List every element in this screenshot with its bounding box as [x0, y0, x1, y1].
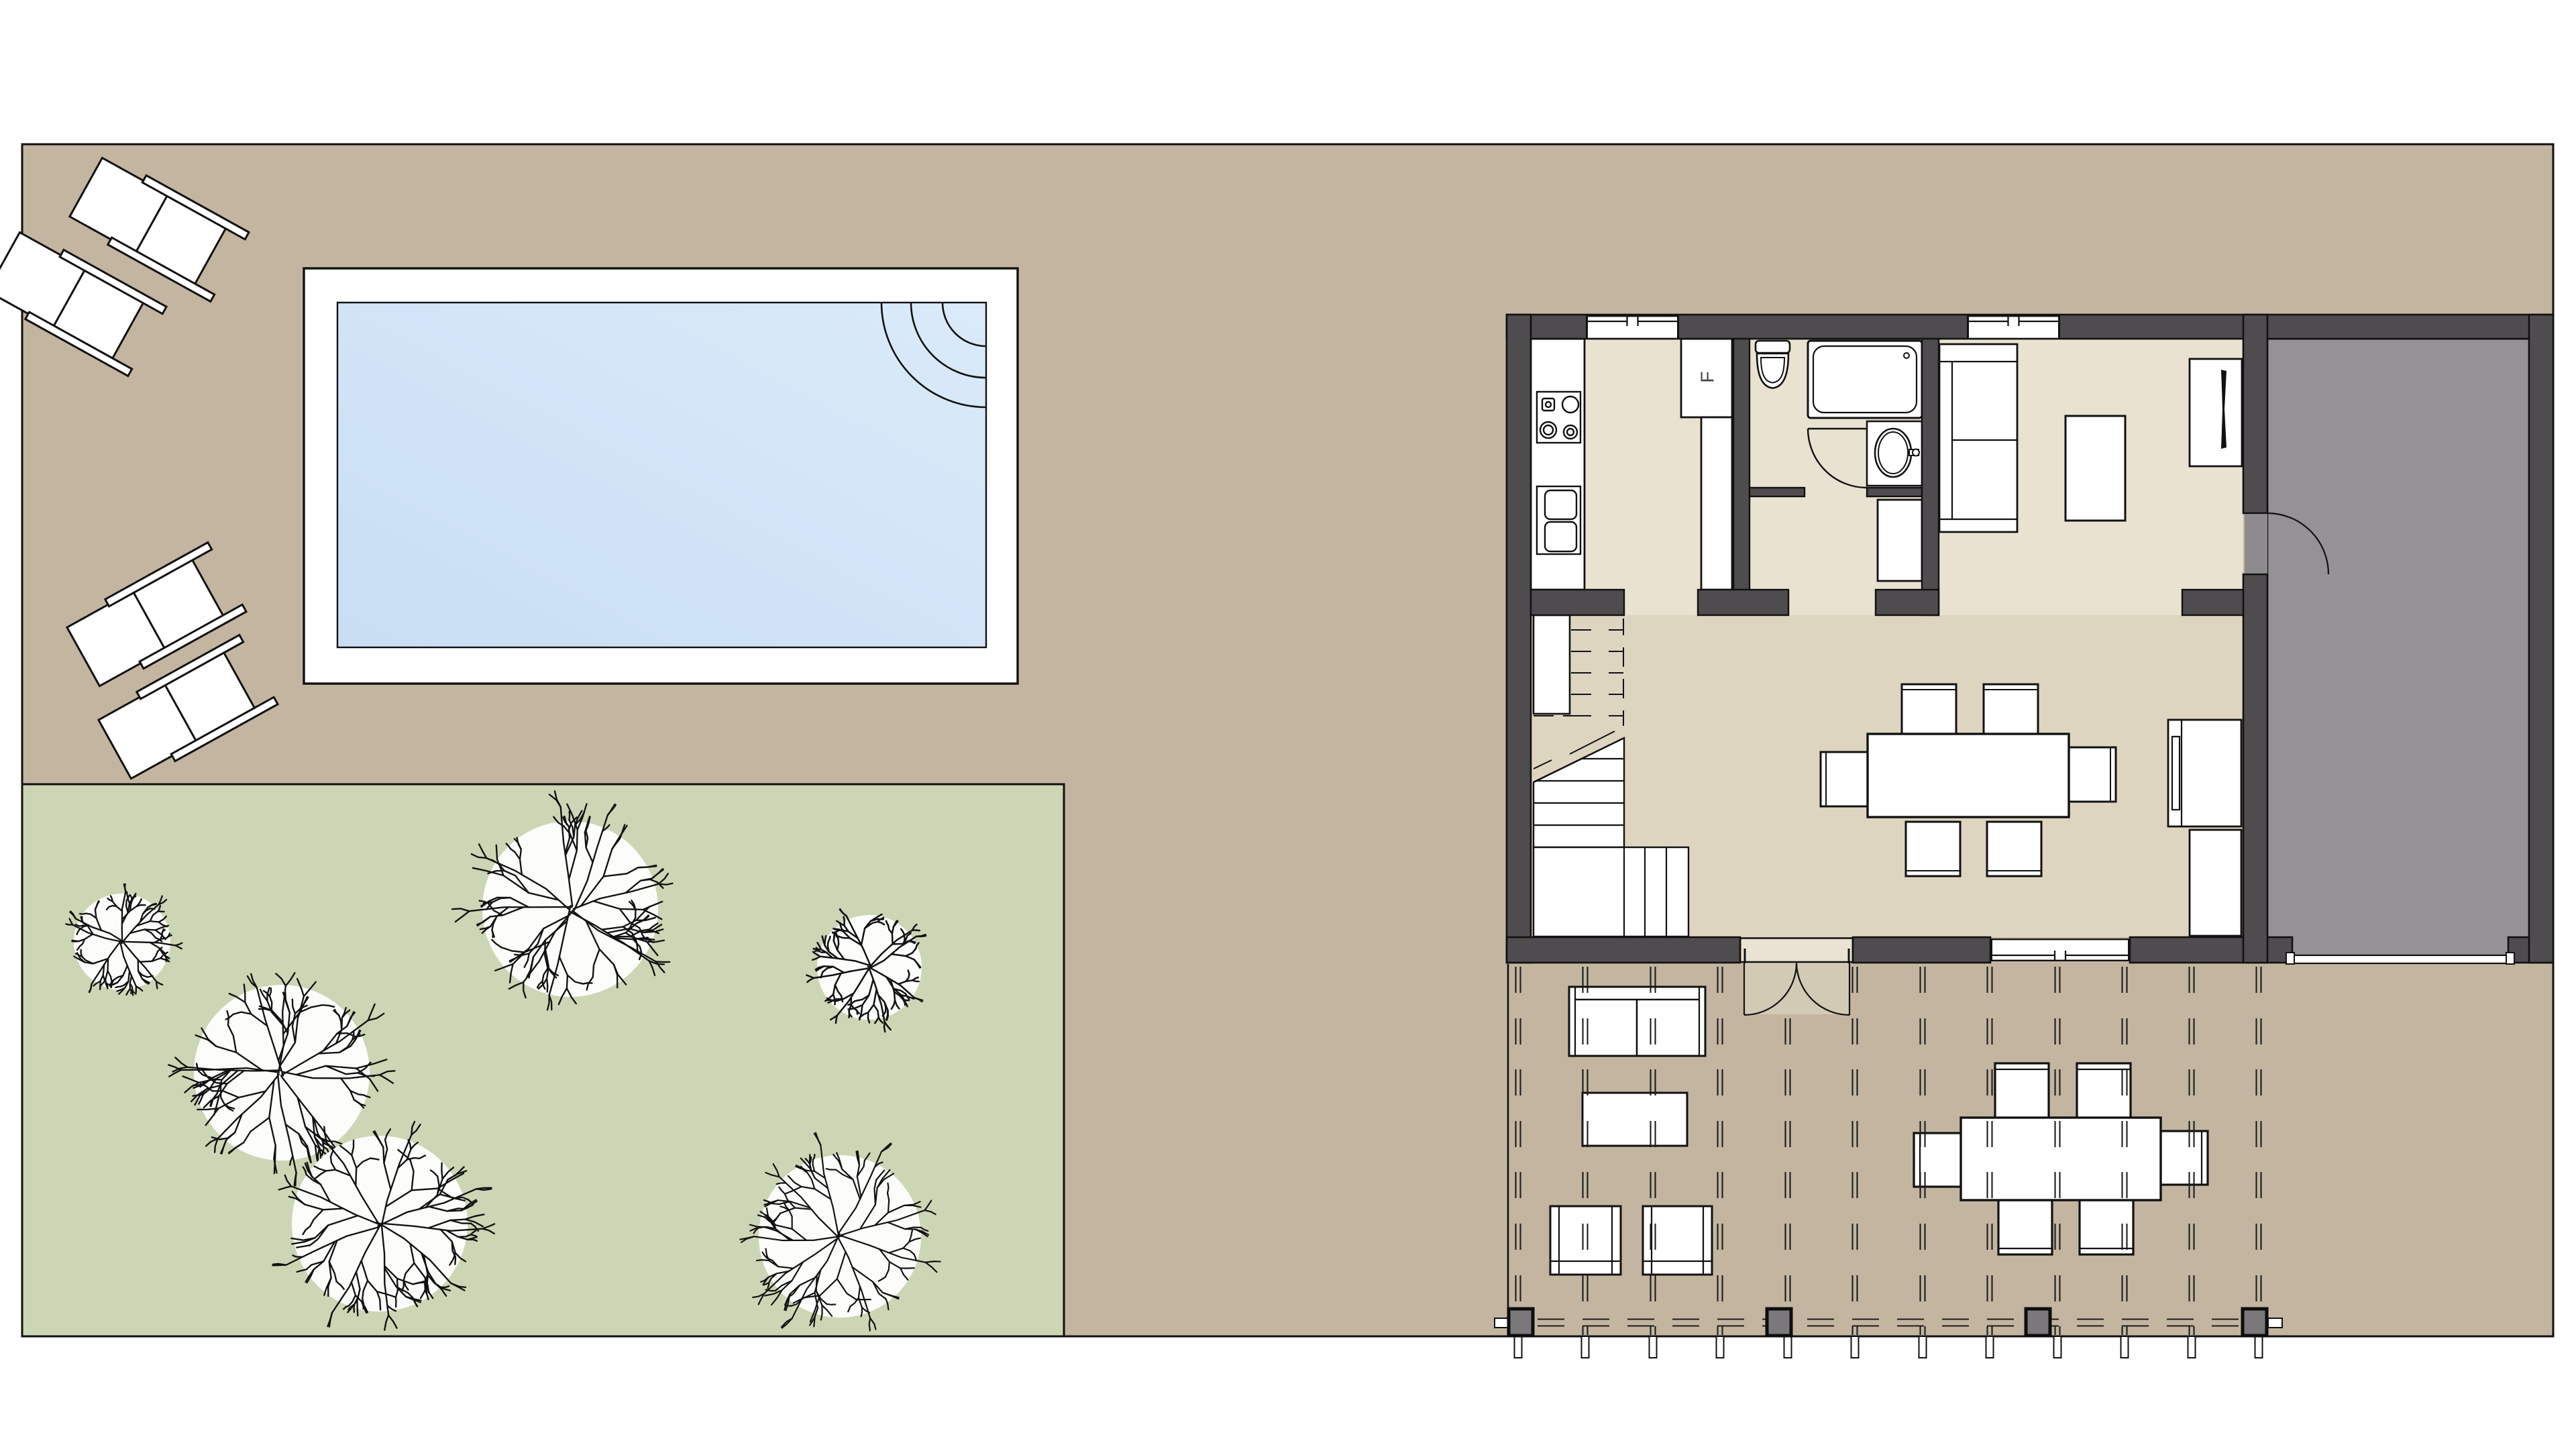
svg-text:F: F: [1697, 371, 1718, 382]
